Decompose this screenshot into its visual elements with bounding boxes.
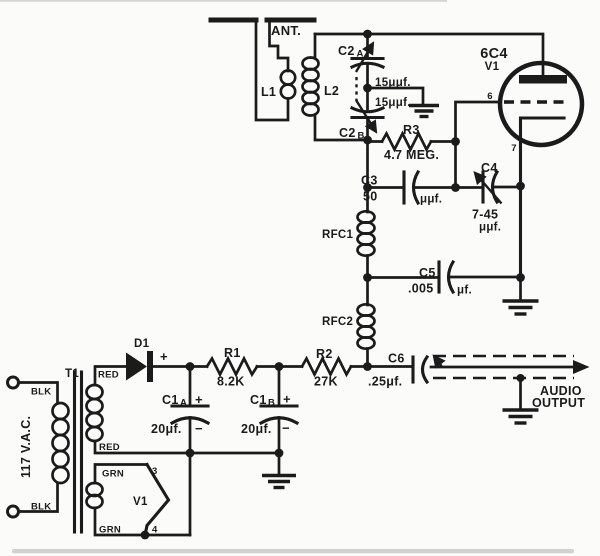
c1a-minus: − xyxy=(195,421,203,436)
c2b-adjust-arrow xyxy=(356,100,376,131)
coil-turn xyxy=(53,467,69,483)
c5-label: C5 xyxy=(419,266,436,280)
output-arrowhead xyxy=(573,360,590,374)
audio-output-label-line2: OUTPUT xyxy=(532,396,585,410)
c1b-label-sub: B xyxy=(268,398,275,409)
plate-electrode xyxy=(519,75,567,84)
coil-turn xyxy=(53,451,69,467)
c2b-label-sub: B xyxy=(358,131,365,142)
r3-value: 4.7 MEG. xyxy=(384,148,439,162)
tube-type-label: 6C4 xyxy=(480,46,508,62)
c2a-value: 15μμf. xyxy=(375,77,411,89)
c2b-label: C2 xyxy=(339,126,356,140)
r1-value: 8.2K xyxy=(217,375,245,389)
d1-polarity: + xyxy=(160,349,168,364)
tube-ref-label: V1 xyxy=(485,61,500,73)
coil-turn xyxy=(53,419,69,435)
d1-label: D1 xyxy=(134,338,150,350)
c1a-label: C1 xyxy=(162,393,179,407)
c6-label: C6 xyxy=(388,352,405,366)
rfc2-label: RFC2 xyxy=(322,316,353,328)
red-wire-label-bottom: RED xyxy=(99,442,120,453)
coil-turn xyxy=(87,385,103,399)
schematic-page: ANT. L1 L2 C2 A 15μμf. 15μμf. C2 B 6C4 V… xyxy=(0,0,600,556)
c3-capacitor xyxy=(368,172,456,203)
coil-turn xyxy=(281,85,295,99)
c2a-label: C2 xyxy=(338,44,355,58)
c5-unit: μf. xyxy=(457,285,472,297)
c3-label: C3 xyxy=(361,174,378,188)
c4-label: C4 xyxy=(481,161,498,175)
r1-resistor xyxy=(207,359,302,375)
grid-lead xyxy=(456,102,501,142)
l2-label: L2 xyxy=(324,84,339,98)
c5-value: .005 xyxy=(408,282,434,296)
coax-entry-arrow xyxy=(435,357,442,366)
ground-symbol xyxy=(262,476,296,488)
c5-capacitor xyxy=(368,262,539,314)
blk-wire-label-bottom: BLK xyxy=(31,502,51,513)
t1-label: T1 xyxy=(65,368,79,380)
rfc1-label: RFC1 xyxy=(322,229,354,241)
c1a-label-sub: A xyxy=(180,398,187,409)
r3-label: R3 xyxy=(403,123,420,137)
grn-wire-label-top: GRN xyxy=(102,469,124,480)
ant-label: ANT. xyxy=(271,23,301,38)
cap-plate-curved xyxy=(423,357,428,382)
line-terminal xyxy=(8,506,19,517)
scan-artifact-top xyxy=(0,0,447,2)
c1a-value: 20μf. xyxy=(151,422,182,436)
line-terminal xyxy=(8,377,19,388)
blk-wire-label-top: BLK xyxy=(31,387,51,398)
c2a-label-sub: A xyxy=(357,49,364,60)
scan-artifact-bottom xyxy=(12,549,574,553)
c1a-plus: + xyxy=(195,392,203,407)
c1b-plus: + xyxy=(283,392,291,407)
circuit-schematic: ANT. L1 L2 C2 A 15μμf. 15μμf. C2 B 6C4 V… xyxy=(0,0,600,556)
r2-resistor xyxy=(302,359,368,375)
tube-6c4 xyxy=(456,63,583,278)
ground-symbol xyxy=(503,278,539,315)
coil-turn xyxy=(87,427,103,441)
resistor-zigzag xyxy=(207,359,257,375)
grn-wire-label-bottom: GRN xyxy=(99,525,121,536)
c1b-label: C1 xyxy=(250,393,267,407)
grid-pin-label: 6 xyxy=(487,91,493,102)
c6-value: .25μf. xyxy=(368,375,402,389)
heater-pin3-label: 3 xyxy=(152,466,158,477)
coil-turn xyxy=(281,71,295,85)
coil-turn xyxy=(53,435,69,451)
heater-ref-label: V1 xyxy=(133,496,148,508)
c4-value: 7-45 xyxy=(472,208,498,222)
rfc1-choke xyxy=(358,140,375,278)
red-wire-label-top: RED xyxy=(98,370,119,381)
ac-input-label: 117 V.A.C. xyxy=(19,416,33,478)
r2-label: R2 xyxy=(316,347,333,361)
ground-symbol xyxy=(409,106,439,117)
r1-label: R1 xyxy=(224,346,241,360)
diode-anode-triangle xyxy=(126,353,147,381)
c3-unit: μμf. xyxy=(420,194,442,206)
heater-pin4-label: 4 xyxy=(152,525,158,536)
l1-coil xyxy=(281,71,295,99)
coil-turn xyxy=(53,403,69,419)
cathode-pin-label: 7 xyxy=(511,143,517,154)
c3-value: 50 xyxy=(363,190,378,204)
c1b-value: 20μf. xyxy=(241,422,272,436)
coil-turn xyxy=(87,413,103,427)
coil-turn xyxy=(87,399,103,413)
r2-value: 27K xyxy=(314,375,338,389)
c4-unit: μμf. xyxy=(479,222,501,234)
rfc2-choke xyxy=(358,278,375,367)
c1b-minus: − xyxy=(282,421,290,436)
c4-trimmer-capacitor xyxy=(456,172,521,204)
c2b-value: 15μμf. xyxy=(375,97,411,109)
l1-label: L1 xyxy=(261,85,276,99)
